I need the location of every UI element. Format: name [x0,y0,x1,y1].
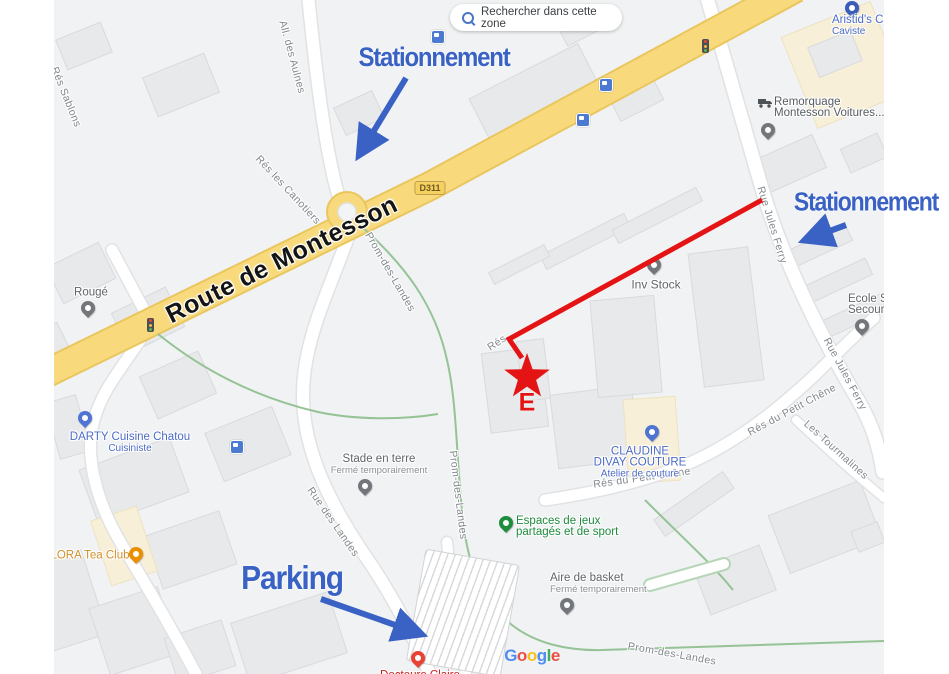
poi-aristids[interactable]: Aristid's Ca Caviste [832,15,884,37]
poi-stade[interactable]: Stade en terre Fermé temporairement [331,454,428,476]
poi-inv-stock[interactable]: Inv Stock [631,280,680,291]
screenshot-page: Route de Montesson D311 All. des Aulnes … [0,0,949,674]
tow-truck-icon [758,97,773,108]
poi-ecole[interactable]: Ecole S Secour [848,294,884,316]
poi-remorquage[interactable]: Remorquage Montesson Voitures... [774,97,884,119]
search-area-chip[interactable]: Rechercher dans cette zone [450,4,622,31]
poi-aire-de-basket[interactable]: Aire de basket Fermé temporairement [550,573,647,595]
traffic-light-icon-2 [702,39,709,53]
poi-espaces[interactable]: Espaces de jeux partagés et de sport [516,516,618,538]
google-watermark: Google [504,646,560,666]
poi-docteure[interactable]: Docteure Claire [380,671,460,674]
search-chip-label: Rechercher dans cette zone [481,6,622,30]
bus-stop-icon-1[interactable] [431,30,445,44]
poi-claudine[interactable]: CLAUDINE DIVAY COUTURE Atelier de coutur… [594,447,687,480]
traffic-light-icon-1 [147,318,154,332]
bus-stop-icon-4[interactable] [230,440,244,454]
route-badge-d311: D311 [414,181,445,195]
poi-darty[interactable]: DARTY Cuisine Chatou Cuisiniste [70,432,190,454]
search-icon [462,12,474,24]
bus-stop-icon-2[interactable] [599,78,613,92]
poi-lora[interactable]: LORA Tea Club [54,551,130,562]
poi-rouge[interactable]: Rougé [74,288,108,299]
map-canvas[interactable]: Route de Montesson D311 All. des Aulnes … [54,0,884,674]
bus-stop-icon-3[interactable] [576,113,590,127]
